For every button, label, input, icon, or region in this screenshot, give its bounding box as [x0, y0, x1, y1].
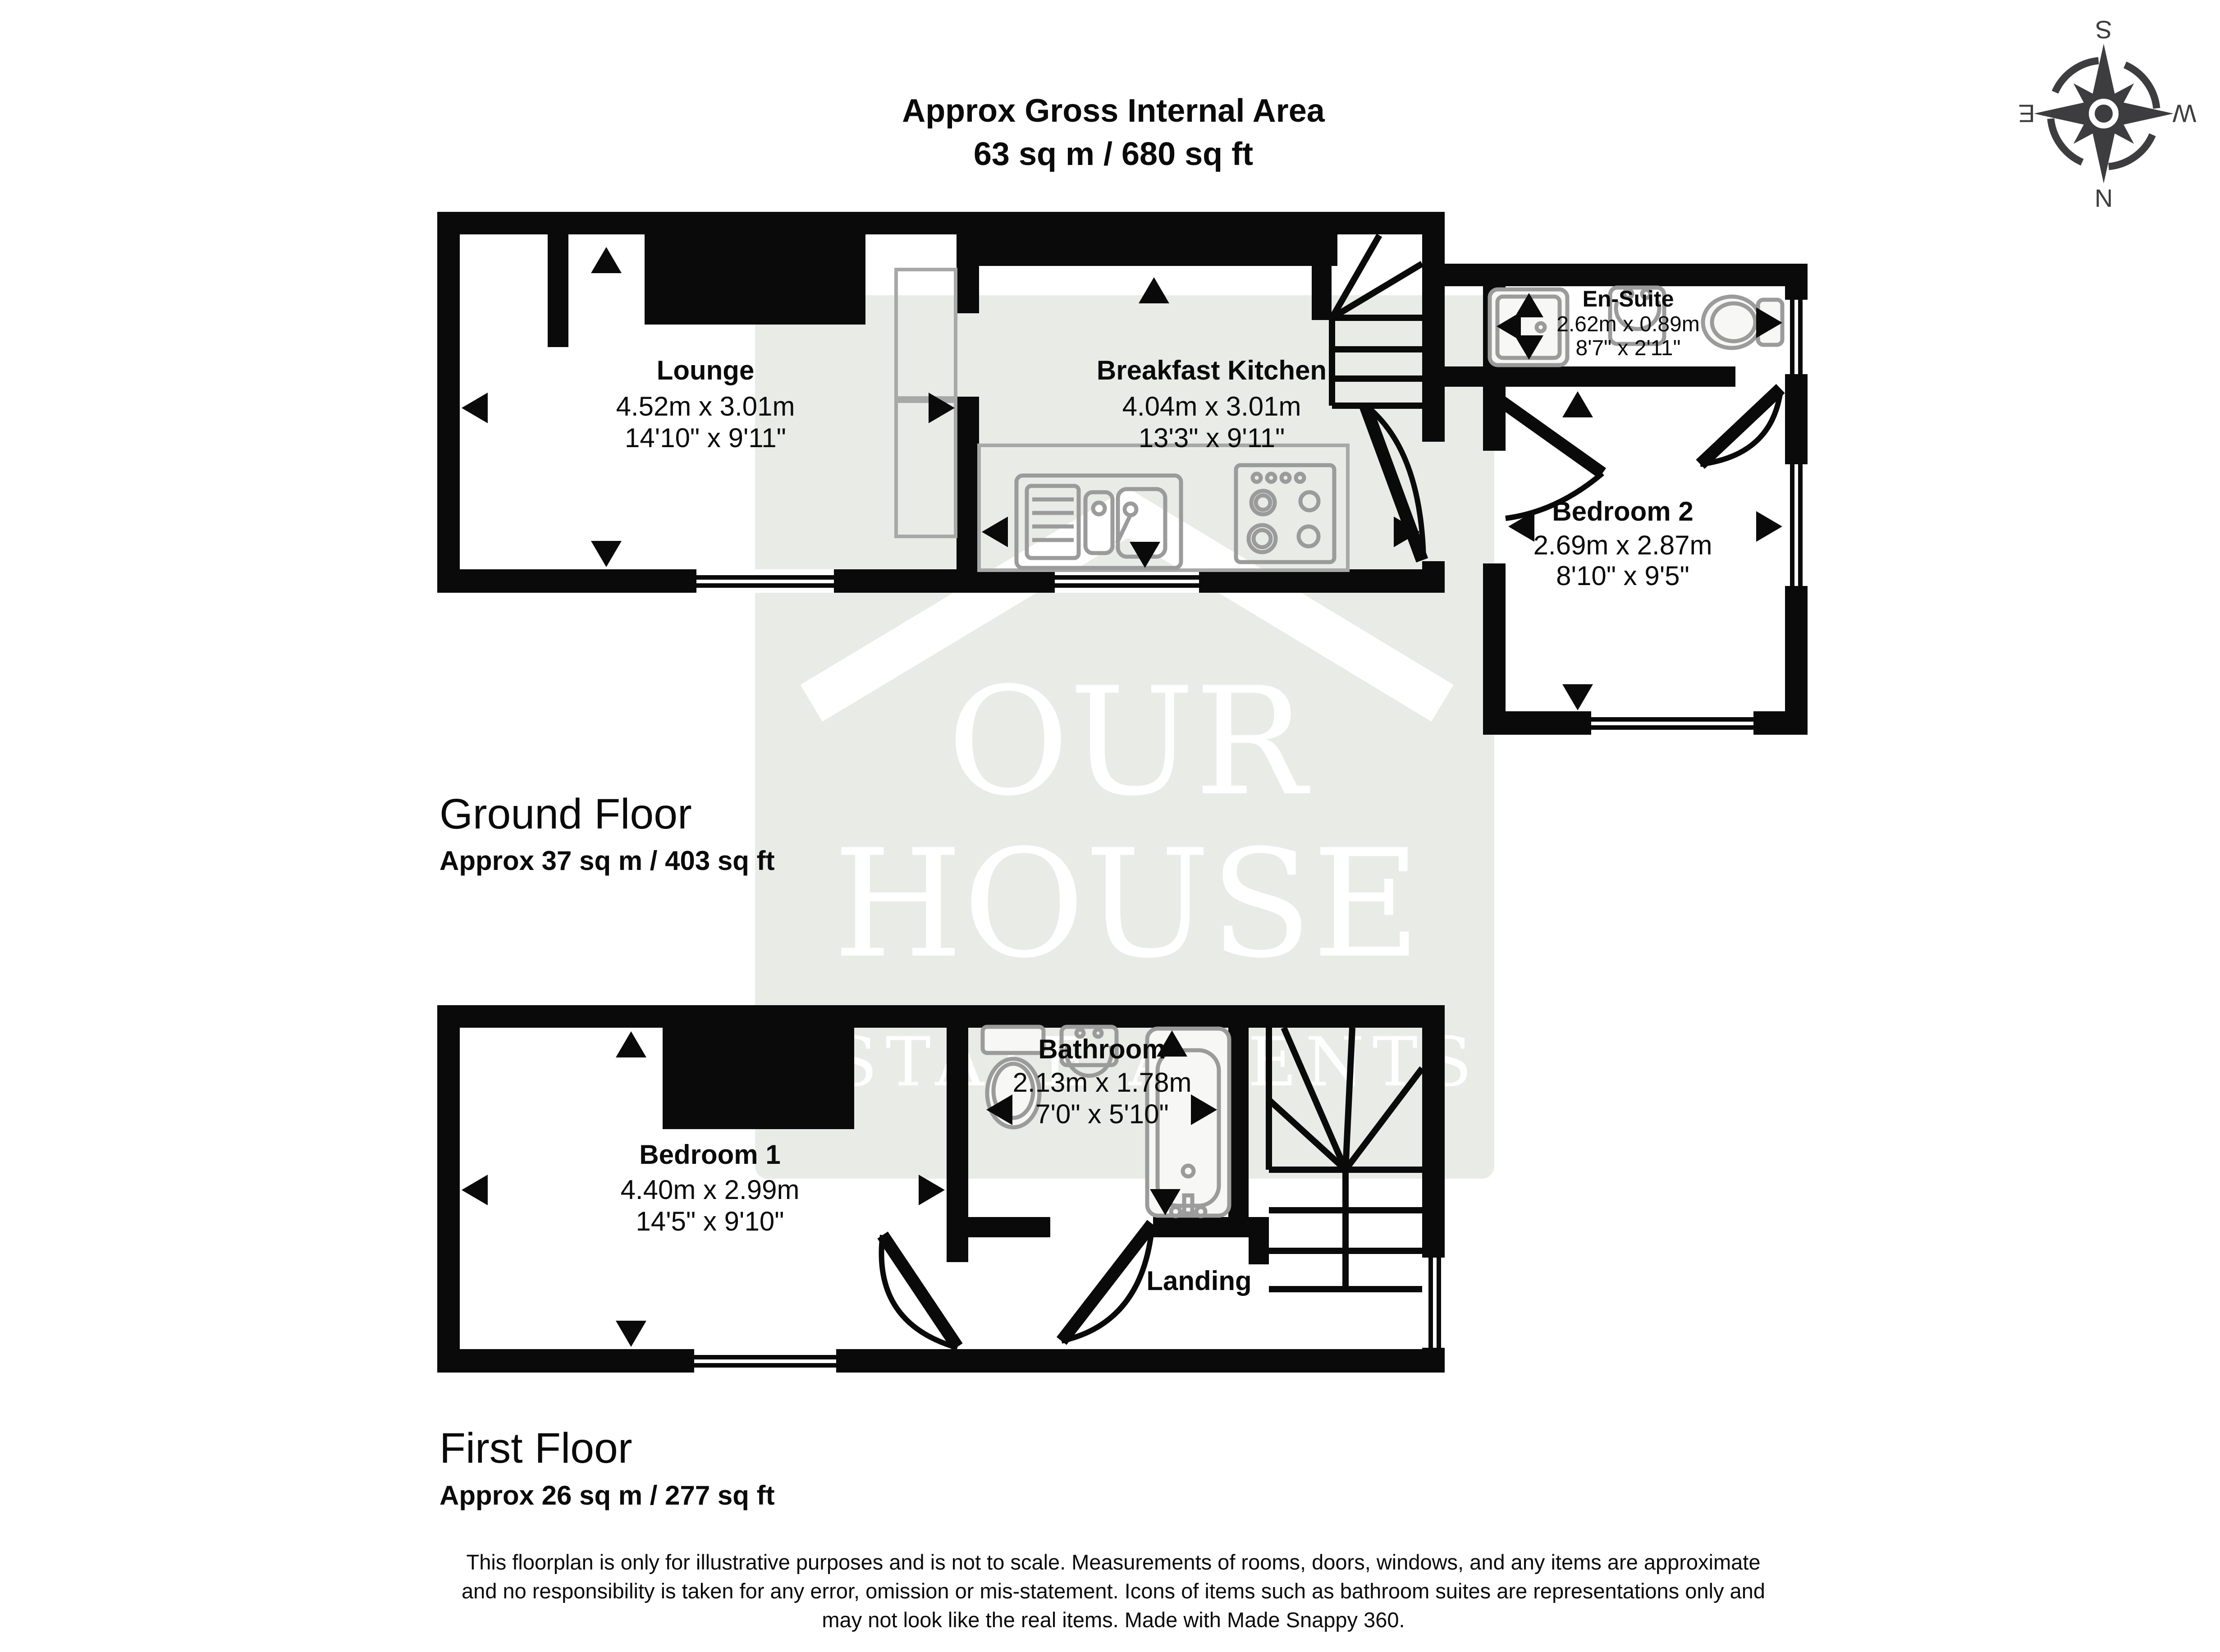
- watermark-line2: HOUSE: [833, 818, 1420, 991]
- bedroom2-side-window: [1784, 464, 1808, 586]
- bedroom1-window: [694, 1349, 836, 1373]
- chimney-breast: [645, 234, 865, 325]
- title-line1: Approx Gross Internal Area: [902, 93, 1325, 129]
- bathroom-imperial: 7'0" x 5'10": [1035, 1099, 1169, 1129]
- lounge-name: Lounge: [657, 355, 755, 385]
- bedroom2-bottom-window: [1591, 711, 1753, 735]
- bedroom2-metric: 2.69m x 2.87m: [1533, 530, 1712, 560]
- bedroom1-metric: 4.40m x 2.99m: [621, 1175, 800, 1205]
- room-landing: Landing: [1146, 1266, 1251, 1296]
- room-bedroom-2: Bedroom 2 2.69m x 2.87m 8'10" x 9'5": [1533, 496, 1712, 591]
- watermark-line1: OUR: [947, 655, 1310, 828]
- bedroom1-imperial: 14'5" x 9'10": [636, 1206, 784, 1236]
- lounge-window: [696, 569, 834, 593]
- ensuite-name: En-Suite: [1583, 286, 1674, 311]
- lounge-metric: 4.52m x 3.01m: [616, 391, 795, 421]
- room-bedroom-1: Bedroom 1 4.40m x 2.99m 14'5" x 9'10": [621, 1139, 800, 1236]
- first-floor-area: Approx 26 sq m / 277 sq ft: [439, 1480, 775, 1510]
- landing-name: Landing: [1146, 1266, 1251, 1296]
- ensuite-metric: 2.62m x 0.89m: [1556, 312, 1699, 336]
- footer-line2: and no responsibility is taken for any e…: [462, 1579, 1765, 1603]
- compass-east-label: E: [2018, 100, 2035, 128]
- compass-south-label: S: [2095, 16, 2112, 44]
- gross-internal-area-title: Approx Gross Internal Area 63 sq m / 680…: [902, 93, 1325, 172]
- bedroom2-name: Bedroom 2: [1552, 496, 1693, 526]
- ground-floor-caption: Ground Floor Approx 37 sq m / 403 sq ft: [439, 790, 775, 876]
- kitchen-imperial: 13'3" x 9'11": [1139, 423, 1285, 453]
- first-floor-caption: First Floor Approx 26 sq m / 277 sq ft: [439, 1424, 775, 1510]
- first-floor-label: First Floor: [439, 1424, 632, 1472]
- bathroom-name: Bathroom: [1038, 1034, 1166, 1064]
- title-line2: 63 sq m / 680 sq ft: [974, 136, 1253, 172]
- bedroom1-name: Bedroom 1: [639, 1139, 780, 1170]
- footer-disclaimer: This floorplan is only for illustrative …: [462, 1550, 1765, 1632]
- compass-north-label: N: [2095, 184, 2113, 213]
- ground-floor-label: Ground Floor: [439, 790, 692, 838]
- room-bathroom: Bathroom 2.13m x 1.78m 7'0" x 5'10": [1013, 1034, 1192, 1129]
- kitchen-window: [1055, 569, 1199, 593]
- bedroom2-imperial: 8'10" x 9'5": [1556, 561, 1689, 591]
- floorplan-canvas: Approx Gross Internal Area 63 sq m / 680…: [0, 0, 2220, 1652]
- floorplan-page: Approx Gross Internal Area 63 sq m / 680…: [0, 0, 2220, 1652]
- ensuite-window: [1784, 300, 1808, 374]
- bathroom-metric: 2.13m x 1.78m: [1013, 1067, 1192, 1098]
- lounge-imperial: 14'10" x 9'11": [625, 423, 786, 453]
- room-en-suite: En-Suite 2.62m x 0.89m 8'7" x 2'11": [1556, 286, 1699, 360]
- kitchen-metric: 4.04m x 3.01m: [1122, 391, 1301, 421]
- compass-west-label: W: [2172, 100, 2196, 128]
- chimney-breast-first: [663, 1028, 854, 1129]
- first-door-arcs: [882, 1224, 1152, 1348]
- landing-window: [1424, 1258, 1446, 1348]
- kitchen-name: Breakfast Kitchen: [1097, 355, 1327, 385]
- compass-icon: S N E W: [2018, 16, 2196, 213]
- footer-line1: This floorplan is only for illustrative …: [467, 1550, 1761, 1574]
- footer-line3: may not look like the real items. Made w…: [822, 1608, 1405, 1632]
- ground-floor-area: Approx 37 sq m / 403 sq ft: [439, 846, 775, 876]
- ensuite-imperial: 8'7" x 2'11": [1576, 336, 1681, 360]
- ground-stairs-icon: [1332, 235, 1422, 406]
